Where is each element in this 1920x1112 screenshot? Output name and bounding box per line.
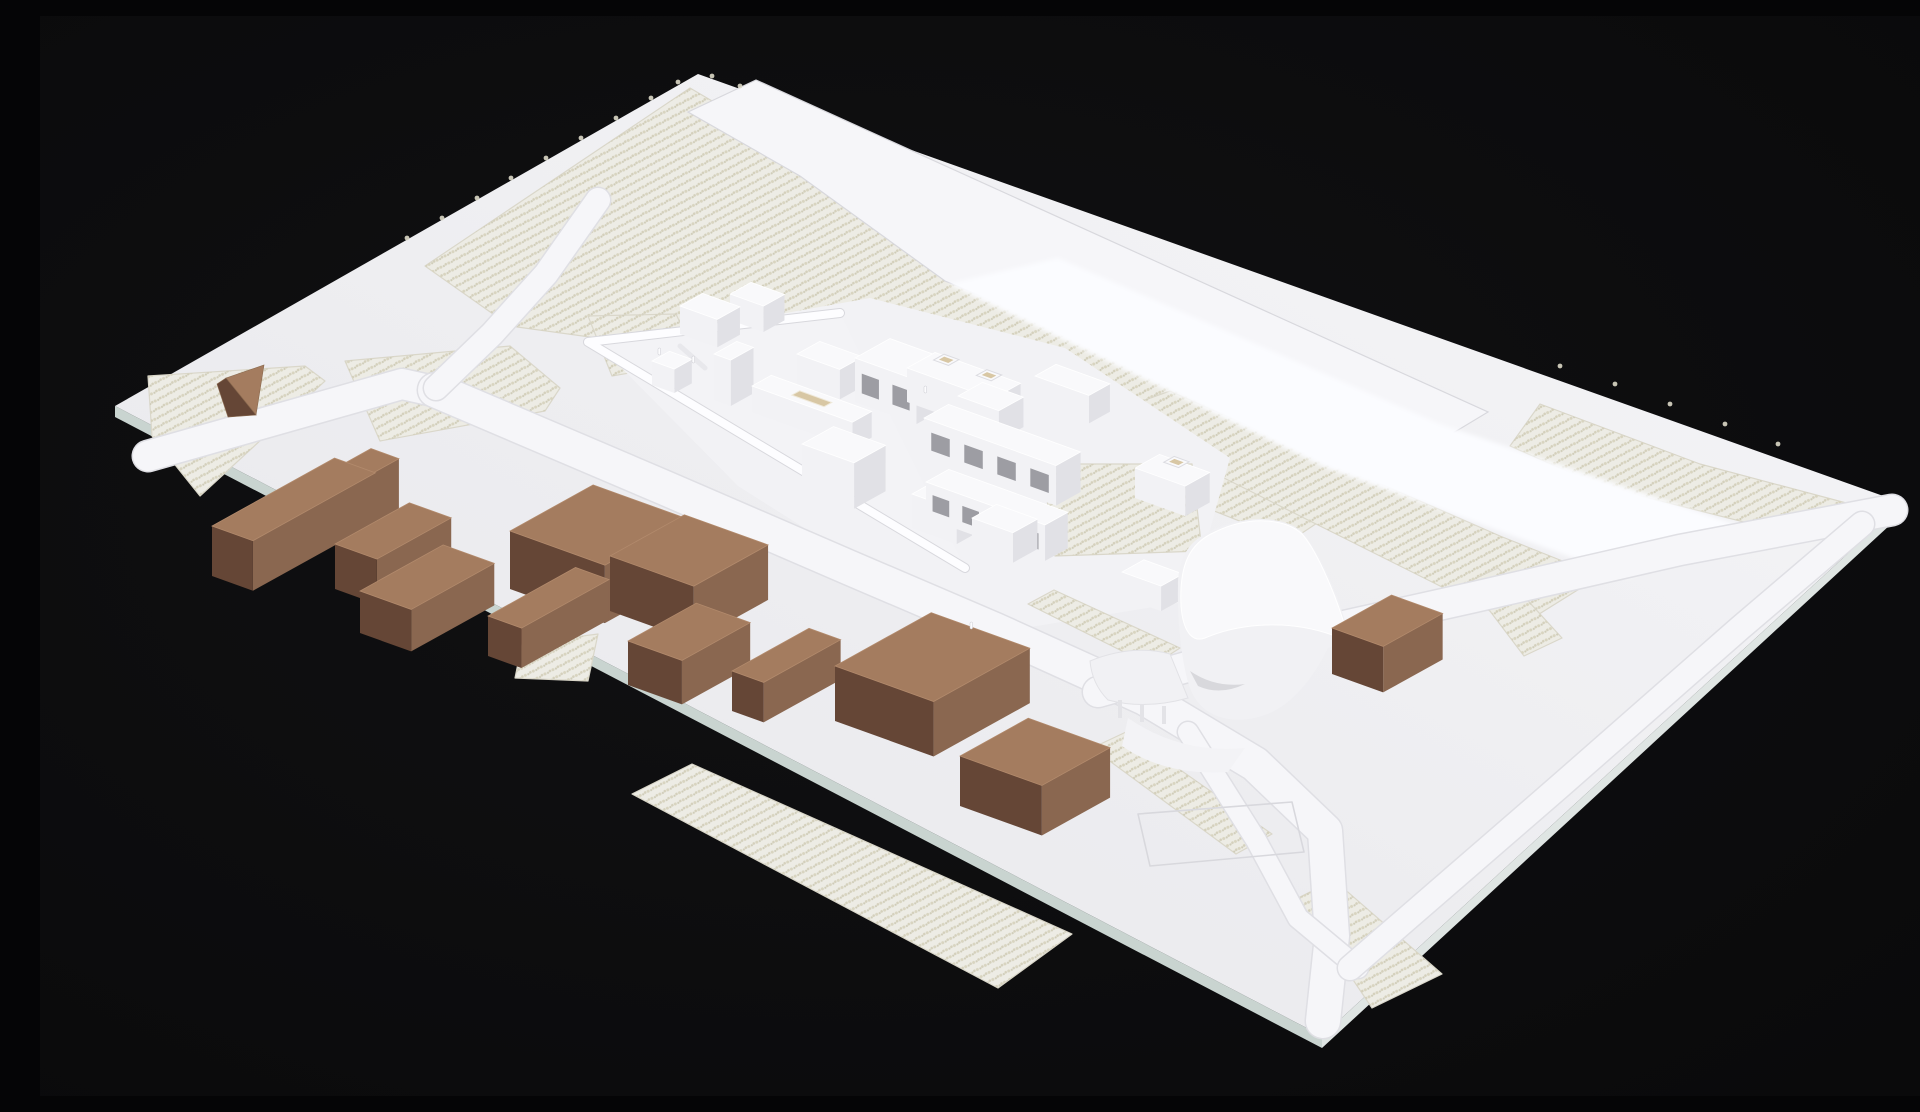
sail-column-1 [1118, 700, 1122, 718]
edge-flock-fringe-1 [405, 236, 410, 241]
edge-flock-fringe-15 [1723, 422, 1728, 427]
edge-flock-fringe-8 [649, 96, 654, 101]
edge-flock-fringe-2 [440, 216, 445, 221]
white-building-slab [714, 341, 753, 406]
model-photo-canvas [40, 16, 1920, 1096]
scale-figure-3 [924, 386, 927, 393]
edge-flock-fringe-4 [509, 176, 514, 181]
edge-flock-fringe-6 [579, 136, 584, 141]
edge-flock-fringe-12 [1558, 364, 1563, 369]
site-model-photo: Photograph of a white architectural site… [40, 16, 1920, 1096]
edge-flock-fringe-13 [1613, 382, 1618, 387]
edge-flock-fringe-9 [676, 80, 681, 85]
edge-flock-fringe-3 [475, 196, 480, 201]
scale-figure-1 [658, 348, 661, 355]
sail-column-3 [1162, 706, 1166, 724]
edge-flock-fringe-16 [1776, 442, 1781, 447]
edge-flock-fringe-7 [614, 116, 619, 121]
edge-flock-fringe-10 [710, 74, 715, 79]
scale-figure-4 [970, 622, 973, 629]
sail-column-2 [1140, 704, 1144, 722]
edge-flock-fringe-14 [1668, 402, 1673, 407]
edge-flock-fringe-5 [544, 156, 549, 161]
white-building-slab-face-sw [714, 354, 731, 406]
edge-flock-fringe-11 [738, 84, 743, 89]
scale-figure-2 [692, 356, 695, 363]
